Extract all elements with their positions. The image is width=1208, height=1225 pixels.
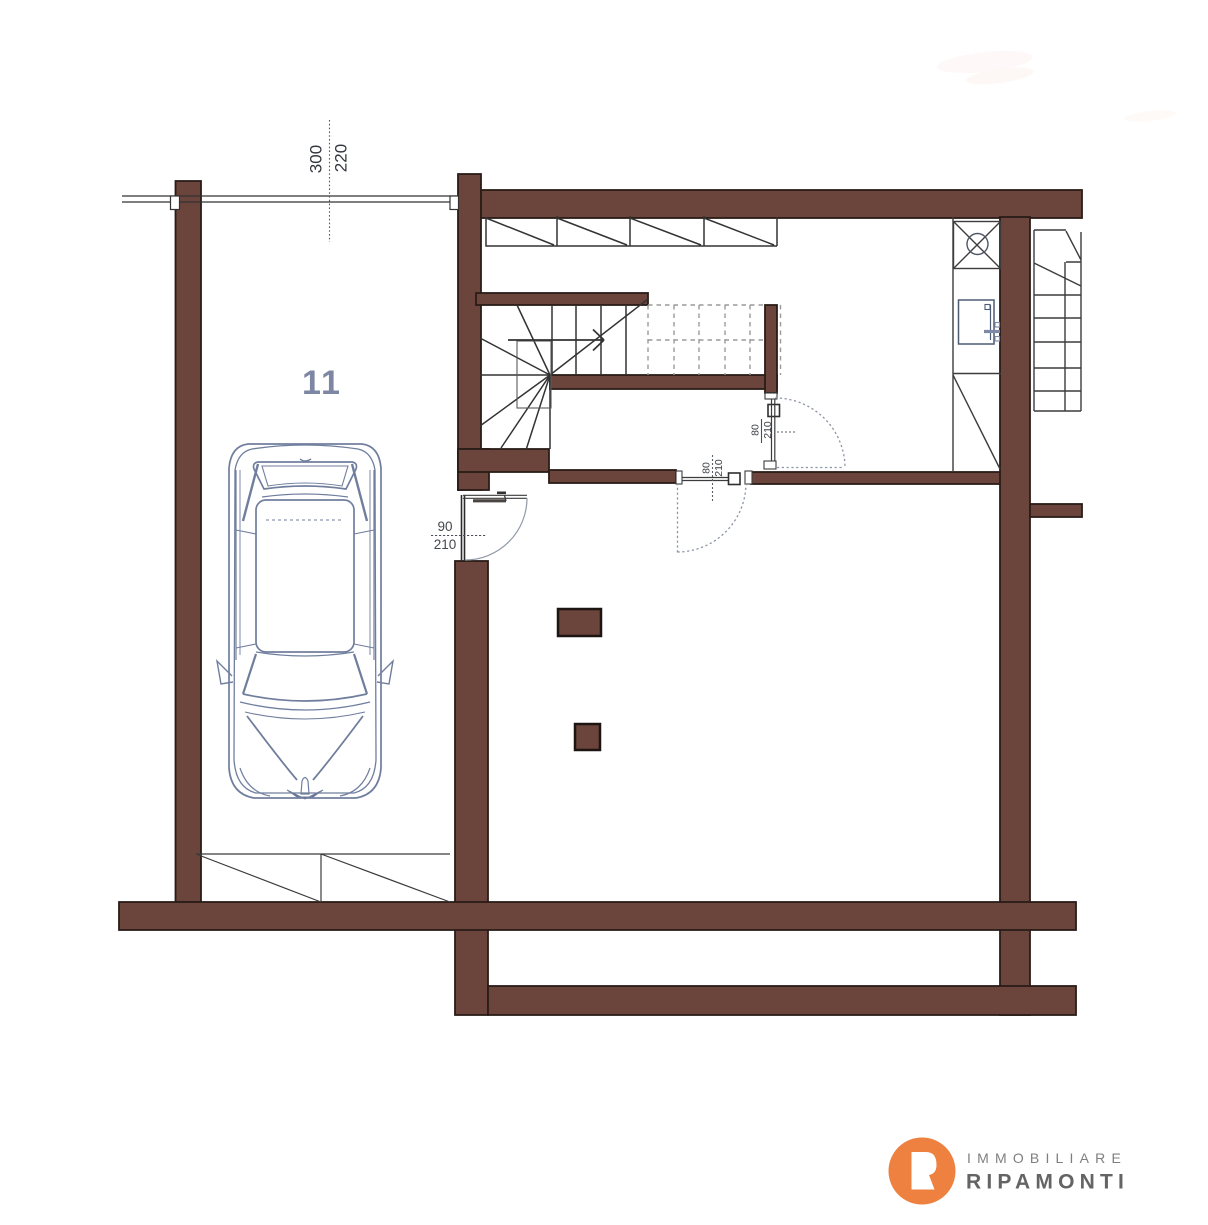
svg-text:210: 210	[713, 459, 725, 477]
svg-text:210: 210	[762, 421, 774, 439]
svg-text:80: 80	[749, 424, 761, 436]
svg-text:80: 80	[700, 462, 712, 474]
svg-text:220: 220	[331, 144, 350, 172]
svg-text:90: 90	[437, 519, 452, 534]
svg-text:RIPAMONTI: RIPAMONTI	[966, 1171, 1129, 1194]
svg-text:300: 300	[306, 145, 325, 173]
svg-text:IMMOBILIARE: IMMOBILIARE	[967, 1150, 1127, 1166]
svg-text:11: 11	[302, 364, 342, 402]
svg-text:210: 210	[434, 537, 457, 552]
